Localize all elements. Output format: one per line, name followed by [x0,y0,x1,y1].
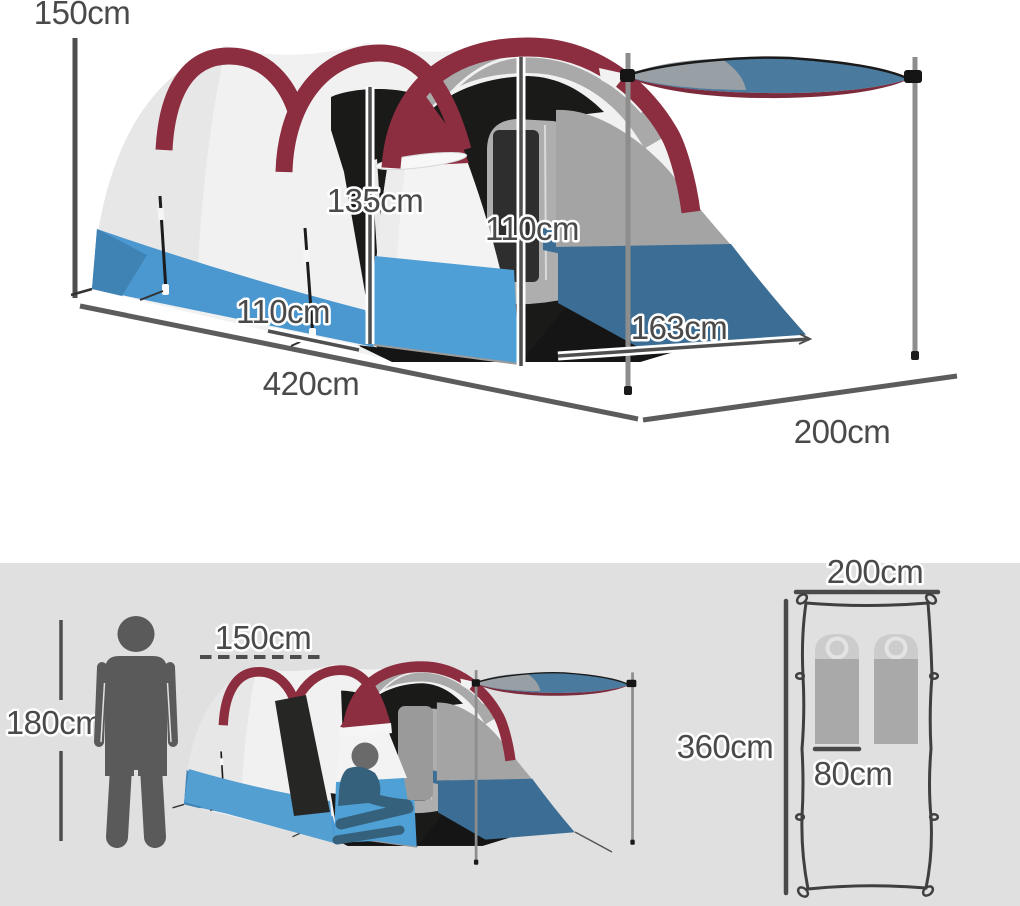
svg-text:180cm: 180cm [6,704,103,741]
svg-text:163cm: 163cm [631,309,728,346]
svg-text:150cm: 150cm [34,0,131,31]
svg-text:360cm: 360cm [677,728,774,765]
svg-text:110cm: 110cm [236,293,330,330]
svg-text:420cm: 420cm [263,365,360,402]
svg-text:80cm: 80cm [814,755,893,792]
svg-text:110cm: 110cm [485,210,579,247]
svg-text:150cm: 150cm [215,619,312,656]
svg-text:135cm: 135cm [327,182,424,219]
svg-text:200cm: 200cm [794,413,891,450]
svg-text:200cm: 200cm [827,553,924,590]
